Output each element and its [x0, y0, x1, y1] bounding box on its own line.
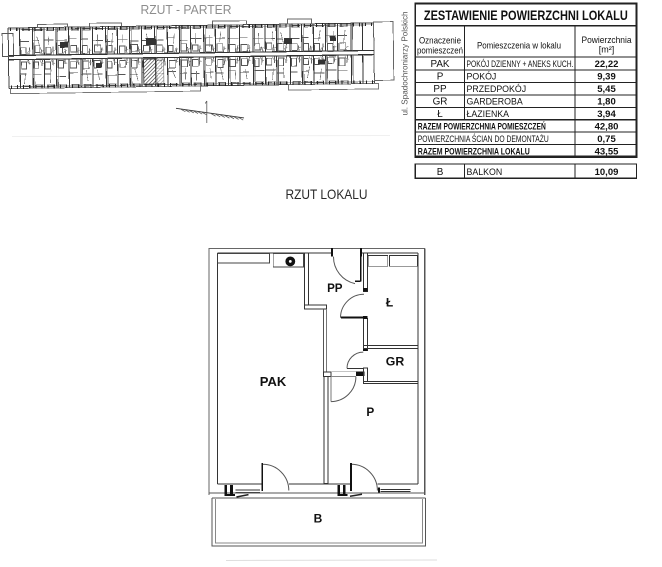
svg-text:Oznaczenie: Oznaczenie — [419, 36, 461, 46]
svg-text:Ł: Ł — [437, 109, 443, 120]
svg-text:RZUT LOKALU: RZUT LOKALU — [286, 187, 368, 202]
svg-text:5,45: 5,45 — [597, 84, 616, 95]
svg-text:9,39: 9,39 — [597, 72, 616, 83]
svg-text:0,75: 0,75 — [597, 134, 616, 145]
svg-text:Pomieszczenia w lokalu: Pomieszczenia w lokalu — [477, 39, 561, 50]
svg-text:Powierzchnia: Powierzchnia — [582, 34, 633, 45]
svg-text:Ł: Ł — [386, 296, 393, 310]
svg-text:BALKON: BALKON — [467, 167, 503, 177]
svg-text:RAZEM POWIERZCHNIA POMIESZCZEŃ: RAZEM POWIERZCHNIA POMIESZCZEŃ — [418, 121, 546, 131]
svg-text:P: P — [437, 72, 444, 83]
svg-text:ŁAZIENKA: ŁAZIENKA — [467, 109, 510, 119]
svg-text:1,80: 1,80 — [597, 97, 616, 108]
svg-text:POWIERZCHNIA ŚCIAN DO DEMONTAŻ: POWIERZCHNIA ŚCIAN DO DEMONTAŻU — [418, 133, 549, 144]
svg-text:PP: PP — [433, 84, 447, 95]
svg-text:RAZEM POWIERZCHNIA LOKALU: RAZEM POWIERZCHNIA LOKALU — [418, 146, 530, 156]
svg-text:PAK: PAK — [430, 59, 449, 70]
svg-text:3,94: 3,94 — [597, 109, 616, 120]
svg-text:B: B — [314, 511, 323, 525]
svg-text:pomieszczeń: pomieszczeń — [417, 45, 463, 55]
svg-text:POKÓJ: POKÓJ — [467, 72, 497, 82]
svg-text:PAK: PAK — [260, 374, 287, 389]
svg-text:PP: PP — [327, 282, 343, 295]
svg-text:GR: GR — [386, 354, 405, 368]
svg-text:PRZEDPOKÓJ: PRZEDPOKÓJ — [467, 84, 527, 94]
svg-text:GARDEROBA: GARDEROBA — [467, 97, 523, 107]
svg-text:B: B — [437, 167, 444, 178]
svg-text:10,09: 10,09 — [595, 167, 619, 178]
svg-text:POKÓJ DZIENNY + ANEKS KUCH.: POKÓJ DZIENNY + ANEKS KUCH. — [467, 59, 574, 69]
svg-text:[m²]: [m²] — [599, 44, 615, 54]
svg-text:42,80: 42,80 — [595, 121, 619, 132]
svg-text:ul. Spadochroniarzy Polskich: ul. Spadochroniarzy Polskich — [399, 11, 409, 115]
svg-text:GR: GR — [433, 97, 448, 108]
svg-text:P: P — [366, 405, 374, 419]
svg-text:ZESTAWIENIE POWIERZCHNI LOKALU: ZESTAWIENIE POWIERZCHNI LOKALU — [424, 8, 628, 23]
svg-text:43,55: 43,55 — [595, 146, 619, 157]
svg-text:RZUT - PARTER: RZUT - PARTER — [141, 2, 232, 17]
svg-text:22,22: 22,22 — [595, 59, 619, 70]
